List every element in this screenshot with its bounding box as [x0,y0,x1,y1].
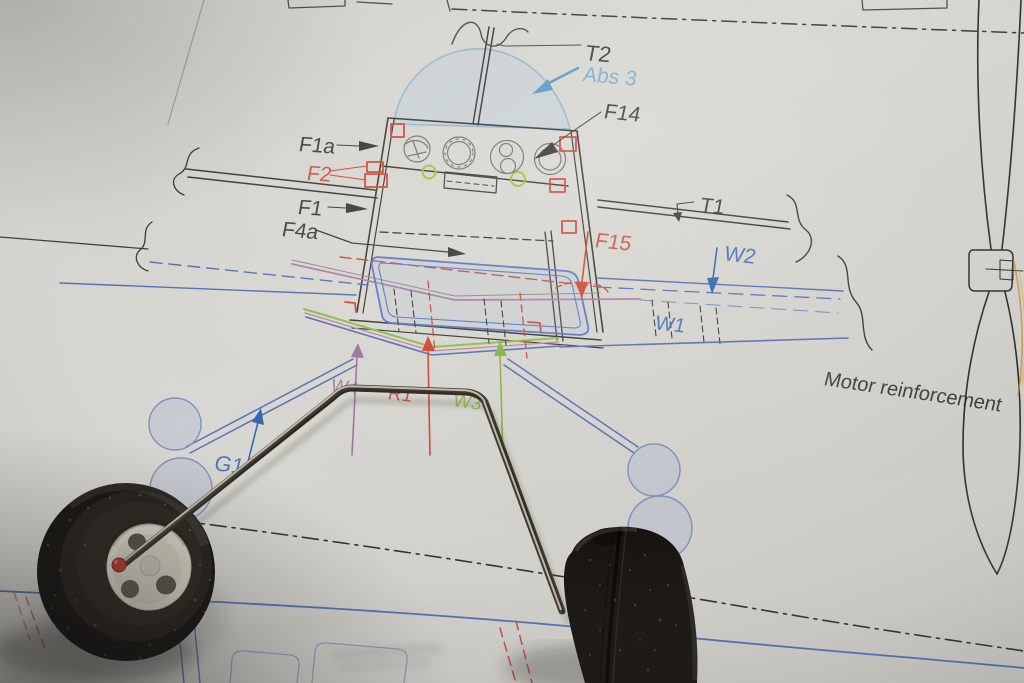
photo-of-model-airplane-plan: T2 Abs 3 F14 F1a F2 F1 F4a T1 F15 W2 W1 … [0,0,1024,683]
lighting-vignette [0,0,1024,683]
